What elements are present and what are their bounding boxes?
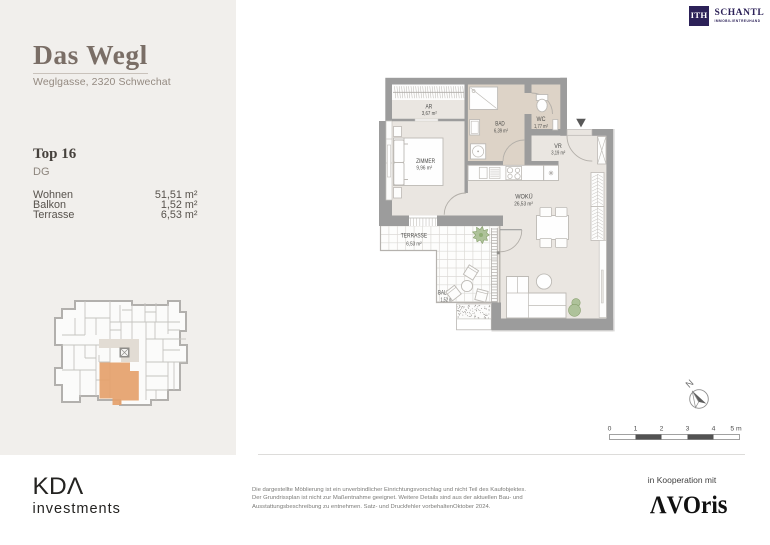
svg-text:WC: WC — [537, 116, 546, 123]
svg-text:WOKÜ: WOKÜ — [515, 192, 533, 200]
svg-text:AR: AR — [426, 103, 433, 110]
svg-text:VR: VR — [554, 143, 562, 150]
svg-text:3,67 m²: 3,67 m² — [422, 111, 437, 117]
svg-text:6,53 m²: 6,53 m² — [406, 241, 421, 247]
svg-text:BAD: BAD — [495, 120, 505, 127]
svg-text:0: 0 — [608, 426, 612, 433]
svg-text:3,19 m²: 3,19 m² — [551, 151, 565, 157]
svg-text:1: 1 — [634, 426, 638, 433]
svg-text:4: 4 — [712, 426, 716, 433]
svg-text:2: 2 — [660, 426, 664, 433]
svg-text:3: 3 — [686, 426, 690, 433]
svg-text:5 m: 5 m — [730, 426, 742, 433]
svg-text:ZIMMER: ZIMMER — [416, 158, 435, 165]
svg-text:9,96 m²: 9,96 m² — [416, 166, 432, 172]
svg-text:6,39 m²: 6,39 m² — [494, 128, 508, 134]
svg-text:1,77 m²: 1,77 m² — [534, 124, 548, 130]
svg-text:N: N — [684, 378, 697, 391]
svg-text:26,53 m²: 26,53 m² — [514, 201, 533, 207]
svg-text:TERRASSE: TERRASSE — [401, 233, 428, 240]
